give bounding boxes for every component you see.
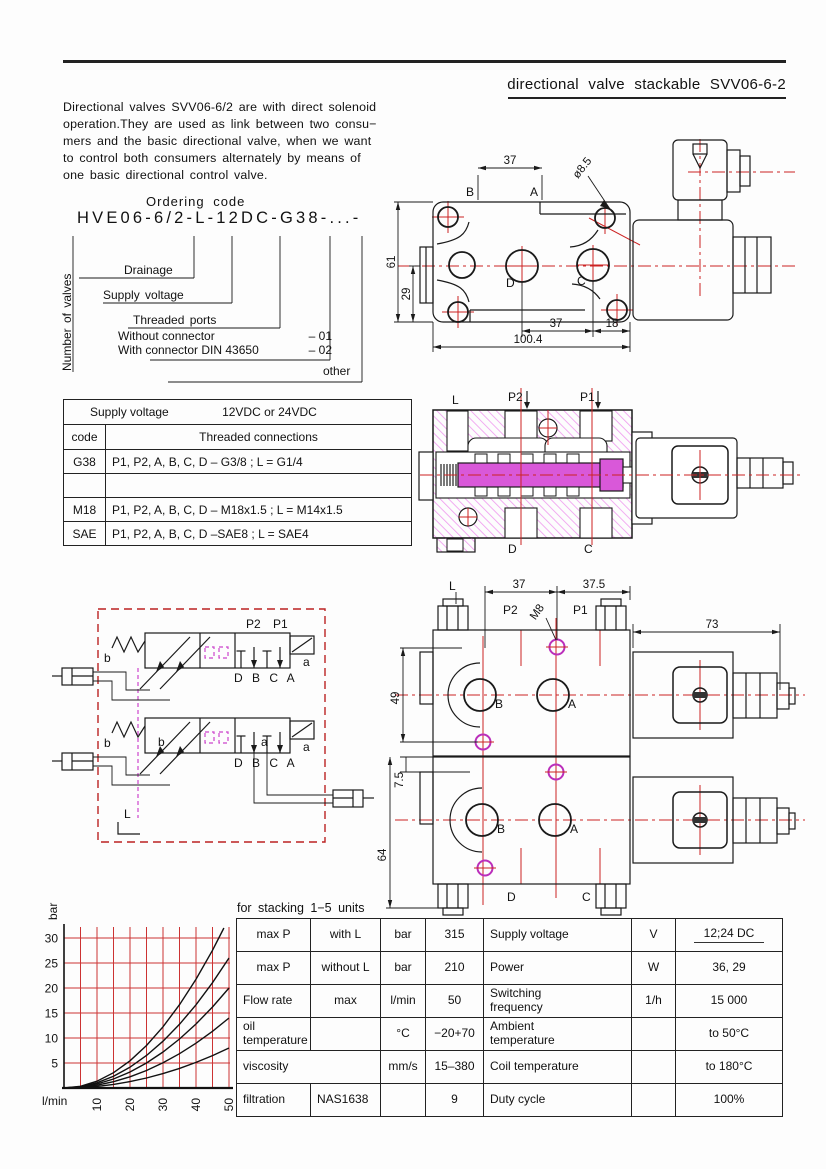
schematic-ports-label: D B C A (234, 671, 298, 685)
stack-port-a1: A (568, 697, 576, 711)
supply-voltage-value: 12VDC or 24VDC (222, 405, 317, 419)
schematic-l-label: L (124, 807, 131, 821)
svg-text:30: 30 (156, 1098, 170, 1112)
pressure-flow-chart: 51015202530 1020304050 bar l/min (40, 895, 245, 1135)
stack-m8-label: M8 (528, 602, 547, 622)
section-port-p2: P2 (508, 390, 523, 404)
dim-61: 61 (386, 256, 398, 269)
spec-cell: V (632, 919, 676, 952)
stack-port-b2: B (497, 822, 505, 836)
thread-conn: P1, P2, A, B, C, D –SAE8 ; L = SAE4 (106, 522, 412, 546)
ordering-other-label: other (323, 364, 350, 378)
spec-cell: Switching frequency (484, 985, 632, 1018)
spec-cell: 15 000 (676, 985, 783, 1018)
spec-cell: bar (381, 919, 426, 952)
threaded-connections-table: Supply voltage 12VDC or 24VDC code Threa… (63, 399, 412, 546)
chart-grid (64, 927, 230, 1088)
spec-cell: 50 (426, 985, 484, 1018)
schematic-wiring (93, 672, 333, 803)
dim-29: 29 (401, 288, 413, 301)
spec-cell (311, 1018, 381, 1051)
dimension-lines (394, 168, 630, 352)
spec-cell: Flow rate (237, 985, 311, 1018)
thread-code: G38 (64, 450, 106, 474)
solenoid-a-label: a (303, 655, 310, 669)
stack-dim-37-5: 37.5 (583, 579, 605, 591)
thread-conn: P1, P2, A, B, C, D – G3/8 ; L = G1/4 (106, 450, 412, 474)
spec-cell: 36, 29 (676, 952, 783, 985)
ordering-supply-voltage-label: Supply voltage (103, 288, 184, 302)
spec-cell: 100% (676, 1084, 783, 1117)
stack-port-l: L (449, 579, 456, 593)
port-a-label: A (530, 185, 538, 199)
spec-cell: bar (381, 952, 426, 985)
spec-cell: without L (311, 952, 381, 985)
svg-text:50: 50 (222, 1098, 236, 1112)
spring-b-label-2: b (104, 736, 111, 750)
ordering-without-connector: Without connector– 01 (118, 329, 332, 343)
stack-port-p1: P1 (573, 603, 588, 617)
stack-port-a2: A (570, 822, 578, 836)
spring-icon (112, 637, 145, 652)
dim-37-top: 37 (504, 155, 517, 167)
ordering-drainage-label: Drainage (124, 263, 173, 277)
svg-text:10: 10 (90, 1098, 104, 1112)
schematic-ports-label-2: D B C A (234, 756, 298, 770)
svg-text:5: 5 (51, 1057, 58, 1071)
spec-cell: mm/s (381, 1051, 426, 1084)
spec-cell: max P (237, 919, 311, 952)
stack-port-d: D (507, 890, 516, 904)
y-axis-label: bar (46, 903, 60, 920)
thread-code (64, 474, 106, 498)
stack-dim-73: 73 (706, 619, 719, 631)
port-b-label: B (466, 185, 474, 199)
spec-cell: max (311, 985, 381, 1018)
spring-icon (112, 722, 145, 737)
x-tick-labels: 1020304050 (90, 1098, 236, 1112)
spec-cell (632, 1084, 676, 1117)
spec-cell: max P (237, 952, 311, 985)
specs-table: max P with L bar 315 Supply voltage V 12… (236, 918, 783, 1117)
svg-text:20: 20 (123, 1098, 137, 1112)
spec-cell: Duty cycle (484, 1084, 632, 1117)
spec-cell: 15–380 (426, 1051, 484, 1084)
dim-100-4: 100.4 (514, 334, 543, 346)
svg-text:15: 15 (45, 1007, 59, 1021)
schematic-p2-label: P2 (246, 617, 261, 631)
solenoid-icon (292, 723, 312, 737)
section-solenoid (632, 432, 793, 524)
hydraulic-schematic: P2 P1 D B C A b a (52, 598, 387, 850)
stack-dim-7-5: 7.5 (394, 772, 406, 788)
spring-b-label: b (104, 651, 111, 665)
svg-text:25: 25 (45, 957, 59, 971)
svg-text:10: 10 (45, 1032, 59, 1046)
valve2-b-label: b (158, 735, 165, 749)
spec-cell (381, 1084, 426, 1117)
solenoid-side (633, 140, 771, 320)
stack-port-b1: B (495, 697, 503, 711)
port-c-label: C (577, 274, 586, 288)
valve-top-view-drawing: 37 B A ø8.5 61 29 D C 37 18 100.4 (388, 133, 800, 370)
stack-dim-37: 37 (513, 579, 526, 591)
stack-bodies (420, 599, 630, 915)
spec-cell: to 50°C (676, 1018, 783, 1051)
stacked-valves-drawing: L 37 37.5 M8 P2 P1 73 49 7.5 64 B A B A … (383, 573, 808, 923)
spec-cell: 9 (426, 1084, 484, 1117)
spec-cell: W (632, 952, 676, 985)
spec-cell: 1/h (632, 985, 676, 1018)
col-conn-header: Threaded connections (106, 425, 412, 450)
spec-cell: Supply voltage (484, 919, 632, 952)
x-axis-label: l/min (42, 1094, 67, 1108)
spec-cell: viscosity (237, 1051, 381, 1084)
section-port-p1: P1 (580, 390, 595, 404)
valve2-a-label: a (261, 735, 268, 749)
ordering-code-title: Ordering code (146, 194, 245, 209)
thread-code: SAE (64, 522, 106, 546)
spec-cell (632, 1051, 676, 1084)
dim-37-bottom: 37 (550, 318, 563, 330)
stack-dimension-lines (386, 586, 780, 908)
thread-code: M18 (64, 498, 106, 522)
ordering-threaded-ports-label: Threaded ports (133, 313, 216, 327)
section-port-c: C (584, 542, 593, 556)
schematic-p1-label: P1 (273, 617, 288, 631)
section-port-d: D (508, 542, 517, 556)
svg-text:30: 30 (45, 932, 59, 946)
spec-cell: 12;24 DC (694, 927, 765, 943)
y-tick-labels: 51015202530 (45, 932, 59, 1071)
spec-cell: Coil temperature (484, 1051, 632, 1084)
thread-conn (106, 474, 412, 498)
title-underline (508, 97, 786, 99)
stack-port-centerlines (483, 618, 700, 905)
spec-cell: Power (484, 952, 632, 985)
page-title: directional valve stackable SVV06-6-2 (440, 76, 786, 93)
section-port-l: L (452, 393, 459, 407)
spec-cell: with L (311, 919, 381, 952)
spec-cell: l/min (381, 985, 426, 1018)
datasheet-page: directional valve stackable SVV06-6-2 Di… (0, 0, 826, 1169)
solenoid-icon (292, 638, 312, 652)
valve-section-drawing: L P2 P1 D C (415, 383, 810, 563)
spec-cell: oil temperature (237, 1018, 311, 1051)
stack-solenoids (633, 652, 795, 863)
drain-bracket (118, 822, 140, 834)
hole-diameter-label: ø8.5 (571, 155, 595, 181)
spec-cell (632, 1018, 676, 1051)
spec-cell: filtration (237, 1084, 311, 1117)
spec-cell: 210 (426, 952, 484, 985)
svg-text:20: 20 (45, 982, 59, 996)
stack-dim-49: 49 (390, 692, 402, 705)
spec-cell: NAS1638 (311, 1084, 381, 1117)
stack-dim-64: 64 (377, 848, 389, 861)
dim-18: 18 (606, 318, 619, 330)
spec-cell: 315 (426, 919, 484, 952)
ordering-with-connector: With connector DIN 43650– 02 (118, 343, 332, 357)
port-d-label: D (506, 276, 515, 290)
stack-port-c: C (582, 890, 591, 904)
supply-voltage-label: Supply voltage (90, 405, 169, 419)
specs-table-title: for stacking 1−5 units (237, 901, 364, 915)
spec-cell: to 180°C (676, 1051, 783, 1084)
spec-cell: −20+70 (426, 1018, 484, 1051)
col-code-header: code (64, 425, 106, 450)
spec-cell: Ambient temperature (484, 1018, 632, 1051)
svg-text:40: 40 (189, 1098, 203, 1112)
top-rule (63, 60, 786, 63)
thread-conn: P1, P2, A, B, C, D – M18x1.5 ; L = M14x1… (106, 498, 412, 522)
stack-dimension-arrows (388, 590, 780, 908)
ordering-code: HVE06-6/2-L-12DC-G38-...- (77, 209, 362, 228)
solenoid-a-label-2: a (303, 740, 310, 754)
spec-cell: °C (381, 1018, 426, 1051)
intro-paragraph: Directional valves SVV06-6/2 are with di… (63, 99, 408, 184)
stack-port-p2: P2 (503, 603, 518, 617)
